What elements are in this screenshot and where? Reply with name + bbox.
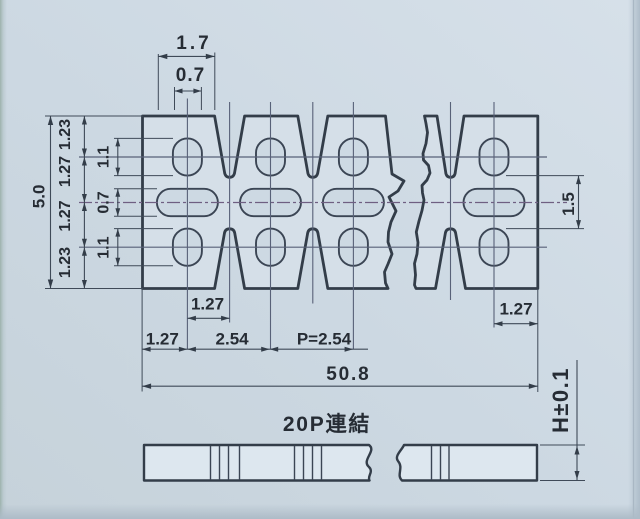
svg-text:1.27: 1.27 [499, 300, 532, 319]
svg-text:1.7: 1.7 [176, 33, 211, 54]
svg-text:2.54: 2.54 [216, 330, 250, 349]
svg-text:H±0.1: H±0.1 [548, 367, 573, 433]
svg-text:1.1: 1.1 [96, 236, 113, 258]
svg-text:1.1: 1.1 [96, 146, 113, 168]
svg-text:0.7: 0.7 [96, 191, 113, 213]
svg-text:1.27: 1.27 [146, 330, 179, 349]
svg-text:1.27: 1.27 [57, 156, 74, 187]
svg-text:50.8: 50.8 [326, 364, 370, 385]
svg-text:P=2.54: P=2.54 [297, 330, 352, 349]
svg-text:1.23: 1.23 [57, 119, 74, 150]
svg-text:1.5: 1.5 [559, 192, 578, 216]
svg-text:5.0: 5.0 [30, 185, 49, 209]
svg-text:20P連結: 20P連結 [283, 412, 371, 436]
svg-text:1.27: 1.27 [191, 295, 224, 314]
svg-text:0.7: 0.7 [176, 65, 205, 86]
svg-text:1.27: 1.27 [57, 200, 74, 231]
svg-text:1.23: 1.23 [57, 247, 74, 278]
